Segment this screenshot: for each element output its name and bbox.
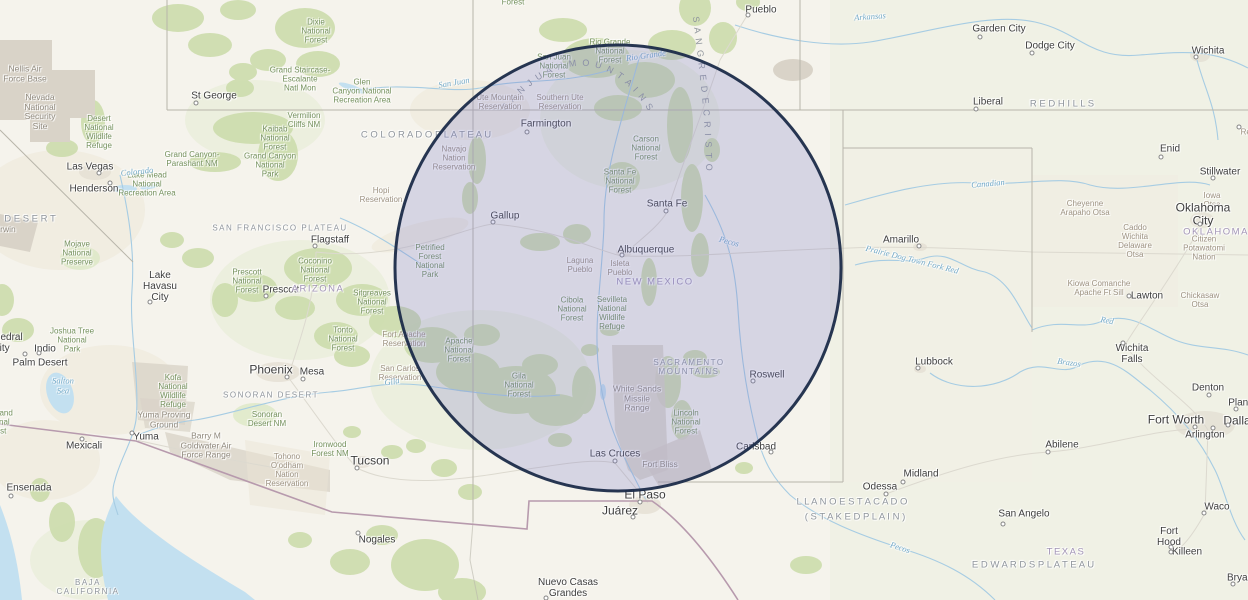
city-marker[interactable]: [978, 35, 983, 40]
map-label: IronwoodForest NM: [311, 441, 348, 459]
city-marker[interactable]: [9, 494, 14, 499]
map-label: Abilene: [1045, 439, 1078, 450]
map-label: LincolnNationalForest: [671, 410, 700, 437]
map-label: Enid: [1160, 143, 1180, 154]
city-marker[interactable]: [1159, 155, 1164, 160]
map-label: GilaNationalForest: [504, 373, 533, 400]
map-label: OklahomaCity: [1176, 202, 1231, 229]
city-marker[interactable]: [1202, 511, 1207, 516]
map-label: Kiowa ComancheApache Ft Sill: [1068, 280, 1131, 298]
map-label: KaibabNationalForest: [260, 126, 289, 153]
city-marker[interactable]: [194, 101, 199, 106]
map-label: Lawton: [1131, 290, 1163, 301]
map-label: ( S T A K E D P L A I N ): [805, 513, 906, 524]
map-label: Palm Desert: [12, 357, 67, 368]
city-marker[interactable]: [37, 351, 42, 356]
map-label: Albuquerque: [618, 244, 675, 255]
map-label: Lubbock: [915, 356, 953, 367]
map-label: PetrifiedForestNationalPark: [415, 244, 444, 280]
map-label: C O L O R A D O P L A T E A U: [361, 131, 491, 142]
map-label: Reservation: [1241, 129, 1248, 138]
city-marker[interactable]: [1234, 407, 1239, 412]
city-marker[interactable]: [1030, 51, 1035, 56]
city-marker[interactable]: [1169, 550, 1174, 555]
map-label: IsletaPueblo: [608, 260, 633, 278]
map-label: TEXAS: [1047, 548, 1086, 559]
map-label: SaltonSea: [52, 376, 74, 395]
map-label: St George: [191, 90, 237, 101]
map-label: Southern UteReservation: [536, 94, 583, 112]
map-label: Waco: [1204, 501, 1229, 512]
city-marker[interactable]: [148, 300, 153, 305]
city-marker[interactable]: [97, 171, 102, 176]
label-layer: Nellis AirForce BaseNevadaNationalSecuri…: [0, 0, 1248, 600]
map-label: Pecos: [889, 540, 911, 555]
map-label: R E D H I L L S: [1030, 100, 1094, 111]
map-label: Fort Bliss: [642, 460, 677, 470]
city-marker[interactable]: [917, 244, 922, 249]
city-marker[interactable]: [620, 253, 625, 258]
city-marker[interactable]: [23, 352, 28, 357]
map-label: ChickasawOtsa: [1181, 292, 1220, 310]
map-label: Stillwater: [1200, 166, 1241, 177]
city-marker[interactable]: [664, 209, 669, 214]
map-label: Joshua TreeNationalPark: [50, 328, 94, 355]
city-marker[interactable]: [1231, 582, 1236, 587]
map-label: Red: [1100, 315, 1115, 327]
map-label: SonoranDesert NM: [248, 411, 286, 429]
city-marker[interactable]: [80, 437, 85, 442]
map-label: GlenCanyon NationalRecreation Area: [332, 79, 391, 106]
city-marker[interactable]: [769, 450, 774, 455]
map-label: DesertNationalWildlifeRefuge: [84, 115, 113, 151]
city-marker[interactable]: [1211, 426, 1216, 431]
map-label: CarsonNationalForest: [631, 136, 660, 163]
city-marker[interactable]: [355, 466, 360, 471]
map-label: SitgreavesNationalForest: [353, 290, 391, 317]
map-label: BAJACALIFORNIA: [56, 579, 119, 597]
map-label: San JuanNationalForest: [537, 54, 571, 81]
city-marker[interactable]: [613, 459, 618, 464]
map-label: San Angelo: [998, 508, 1049, 519]
city-marker[interactable]: [130, 431, 135, 436]
map-label: TohonoO'odhamNationReservation: [266, 453, 309, 489]
map-label: SevilletaNationalWildlifeRefuge: [597, 296, 627, 332]
map-label: ClevelandNationalForest: [0, 410, 13, 437]
map-label: CoconinoNationalForest: [298, 258, 332, 285]
map-label: TontoNationalForest: [328, 327, 357, 354]
city-marker[interactable]: [301, 377, 306, 382]
city-marker[interactable]: [264, 294, 269, 299]
city-marker[interactable]: [1121, 341, 1126, 346]
city-marker[interactable]: [491, 220, 496, 225]
city-marker[interactable]: [631, 515, 636, 520]
city-marker[interactable]: [1127, 294, 1132, 299]
map-label: Rio Grande: [626, 49, 667, 64]
city-marker[interactable]: [313, 244, 318, 249]
map-label: NEW MEXICO: [616, 278, 693, 289]
map-label: SACRAMENTOMOUNTAINS: [653, 359, 724, 377]
map-label: NavajoNationReservation: [433, 146, 476, 173]
map-label: Yuma: [133, 431, 159, 442]
city-marker[interactable]: [974, 107, 979, 112]
city-marker[interactable]: [1001, 522, 1006, 527]
map-label: Santa FeNationalForest: [604, 169, 636, 196]
map-label: VermilionCliffs NM: [288, 112, 321, 130]
map-label: Rio GrandeNationalForest: [590, 39, 631, 66]
map-label: DixieNationalForest: [301, 19, 330, 46]
map-label: Mexicali: [66, 440, 102, 451]
city-marker[interactable]: [1194, 55, 1199, 60]
city-marker[interactable]: [1207, 393, 1212, 398]
map-label: L L A N O E S T A C A D O: [797, 498, 908, 509]
map-label: Prairie Dog Town Fork Red: [864, 244, 959, 276]
map-label: Grand CanyonNationalPark: [244, 153, 296, 180]
map-label: CitizenPotawatomiNation: [1183, 236, 1225, 263]
map-label: E D W A R D S P L A T E A U: [972, 561, 1094, 572]
map-label: Ute MountainReservation: [476, 94, 524, 112]
city-marker[interactable]: [1046, 450, 1051, 455]
map-label: Arkansas: [854, 11, 886, 23]
city-marker[interactable]: [525, 130, 530, 135]
map-label: Garden City: [972, 23, 1025, 34]
map-label: SONORAN DESERT: [223, 392, 319, 401]
map-label: Odessa: [863, 481, 897, 492]
map-label: SAN FRANCISCO PLATEAU: [212, 225, 347, 234]
map-label: Ensenada: [6, 482, 51, 493]
city-marker[interactable]: [746, 13, 751, 18]
map-label: Brazos: [1057, 357, 1082, 370]
map-label: White SandsMissileRange: [613, 385, 661, 414]
map-label: CibolaNationalForest: [557, 297, 586, 324]
map-label: Las Vegas: [67, 161, 114, 172]
map-label: Yuma ProvingGround: [138, 410, 191, 429]
map-label: Forest: [502, 0, 525, 7]
map-label: MojaveNationalPreserve: [61, 241, 93, 268]
map-label: CaddoWichitaDelawareOtsa: [1118, 224, 1152, 260]
map-label: Amarillo: [883, 234, 919, 245]
map-label: Farmington: [521, 118, 572, 129]
map-label: CathedralCity: [0, 332, 23, 354]
map-label: CheyenneArapaho Otsa: [1060, 200, 1109, 218]
map-label: Barry MGoldwater AirForce Range: [180, 432, 231, 461]
city-marker[interactable]: [285, 375, 290, 380]
map-canvas[interactable]: S A N J U A N M O U N T A I N S S A N G …: [0, 0, 1248, 600]
map-label: NevadaNationalSecuritySite: [24, 93, 55, 131]
map-label: Fort Irwin: [0, 225, 16, 235]
map-label: Pecos: [718, 235, 740, 249]
map-label: Arlington: [1185, 429, 1224, 440]
map-label: Fort ApacheReservation: [382, 331, 425, 349]
map-label: LagunaPueblo: [567, 257, 594, 275]
map-label: WichitaFalls: [1116, 343, 1149, 365]
map-label: KofaNationalWildlifeRefuge: [158, 374, 187, 410]
city-marker[interactable]: [916, 366, 921, 371]
city-marker[interactable]: [356, 531, 361, 536]
map-label: El Paso: [624, 488, 665, 501]
city-marker[interactable]: [1226, 423, 1231, 428]
city-marker[interactable]: [638, 500, 643, 505]
city-marker[interactable]: [1211, 176, 1216, 181]
map-label: Midland: [903, 468, 938, 479]
map-label: San Juan: [438, 76, 471, 91]
map-label: Gila: [384, 376, 401, 388]
map-label: Liberal: [973, 96, 1003, 107]
map-label: ApacheNationalForest: [444, 338, 473, 365]
map-label: Canadian: [971, 178, 1005, 190]
city-marker[interactable]: [901, 480, 906, 485]
map-label: Killeen: [1172, 546, 1202, 557]
map-label: ARIZONA: [292, 285, 345, 296]
city-marker[interactable]: [544, 596, 549, 600]
map-label: Grand Canyon-Parashant NM: [165, 151, 220, 169]
map-label: Nellis AirForce Base: [3, 64, 46, 83]
map-label: Grand Staircase-EscalanteNatl Mon: [270, 67, 330, 94]
map-label: PrescottNationalForest: [232, 269, 261, 296]
city-marker[interactable]: [1237, 125, 1242, 130]
map-label: Nogales: [359, 534, 396, 545]
map-label: HopiReservation: [360, 187, 403, 205]
city-marker[interactable]: [108, 181, 113, 186]
city-marker[interactable]: [751, 379, 756, 384]
